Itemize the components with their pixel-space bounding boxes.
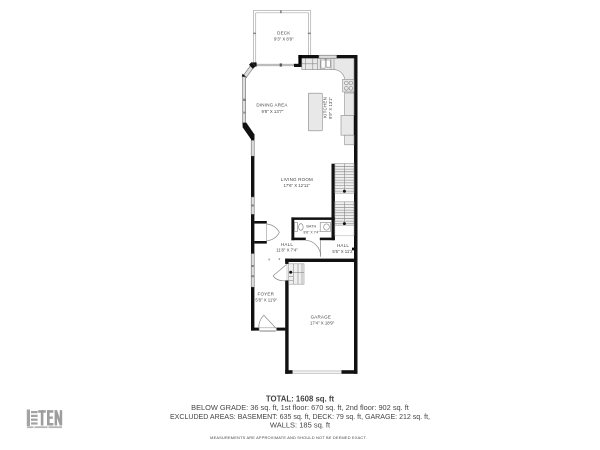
- svg-text:9'3" X 8'9": 9'3" X 8'9": [274, 36, 294, 41]
- svg-text:DECK: DECK: [277, 30, 290, 35]
- svg-text:MEASUREMENTS ARE APPROXIMATE A: MEASUREMENTS ARE APPROXIMATE AND SHOULD …: [210, 435, 367, 440]
- svg-text:BELOW GRADE: 36 sq. ft, 1st fl: BELOW GRADE: 36 sq. ft, 1st floor: 670 s…: [191, 403, 409, 412]
- svg-text:HALL: HALL: [337, 243, 349, 248]
- svg-text:9'9" X 13'1": 9'9" X 13'1": [328, 97, 333, 119]
- svg-text:WALLS: 185 sq. ft: WALLS: 185 sq. ft: [270, 421, 331, 430]
- svg-text:17'4" X 18'9": 17'4" X 18'9": [310, 321, 335, 326]
- svg-text:9'8" X 13'7": 9'8" X 13'7": [262, 109, 284, 114]
- svg-text:DINING AREA: DINING AREA: [256, 102, 287, 107]
- svg-text:BATH: BATH: [306, 225, 316, 229]
- svg-text:11'8" X 7'4": 11'8" X 7'4": [276, 248, 298, 253]
- svg-text:HALL: HALL: [281, 242, 293, 247]
- svg-text:FOYER: FOYER: [258, 291, 275, 296]
- svg-text:8'8" X 7'4": 8'8" X 7'4": [304, 230, 321, 234]
- svg-text:GARAGE: GARAGE: [311, 315, 331, 320]
- svg-text:5'5" X 11'2": 5'5" X 11'2": [332, 249, 354, 254]
- svg-text:5'8" X 11'9": 5'8" X 11'9": [255, 298, 277, 303]
- svg-text:KITCHEN: KITCHEN: [323, 97, 328, 118]
- svg-text:17'6" X 12'11": 17'6" X 12'11": [284, 183, 311, 188]
- svg-text:LIVING ROOM: LIVING ROOM: [281, 177, 313, 182]
